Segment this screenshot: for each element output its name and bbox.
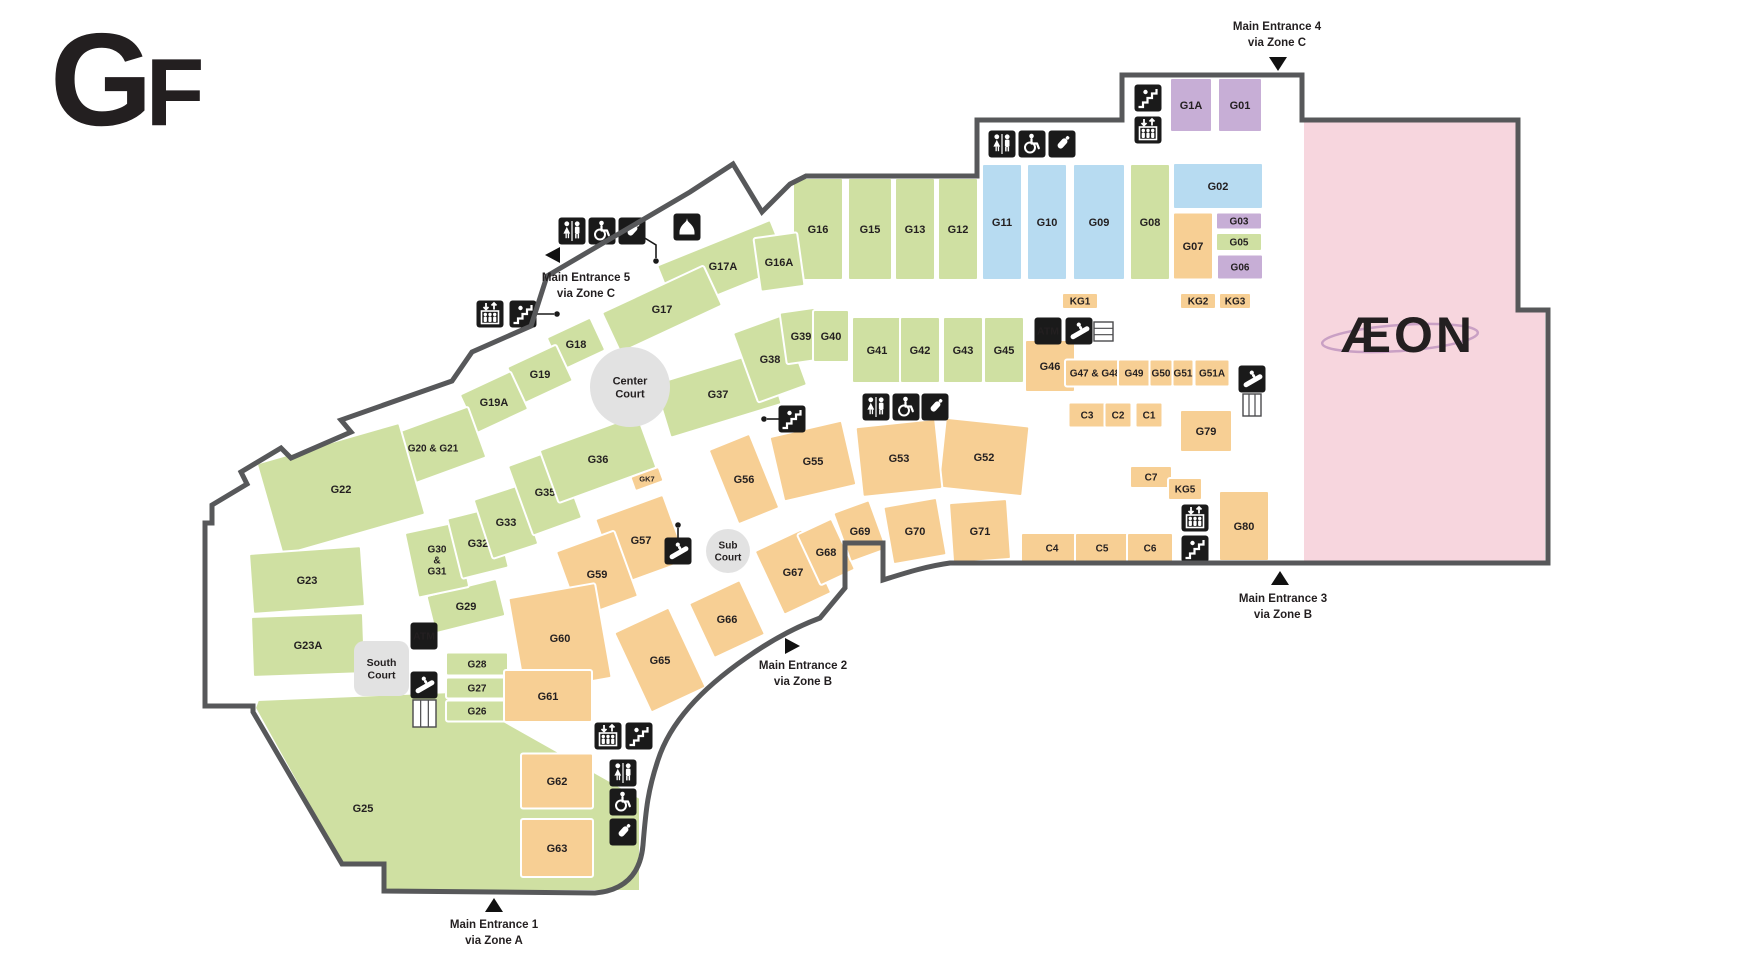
unit-label: G46 [1040, 361, 1061, 373]
unit-g10: G10 [1027, 164, 1067, 280]
unit-g1a: G1A [1170, 78, 1212, 132]
unit-label: G06 [1231, 263, 1250, 274]
entrance-2-label: via Zone B [774, 676, 832, 688]
unit-g51: G51 [1173, 360, 1194, 387]
unit-label: G36 [588, 454, 609, 466]
unit-label: G79 [1196, 426, 1217, 438]
entrance-1-arrow-icon [485, 898, 503, 912]
unit-label: C2 [1112, 411, 1125, 422]
unit-g02: G02 [1173, 163, 1263, 209]
unit-label: G18 [566, 339, 587, 351]
unit-label: G56 [734, 474, 755, 486]
unit-label: G53 [889, 453, 910, 465]
unit-g07: G07 [1173, 213, 1213, 280]
court-label: Sub [719, 541, 738, 552]
unit-label: C3 [1081, 411, 1094, 422]
unit-g55: G55 [770, 421, 857, 502]
sub-court: SubCourt [706, 529, 750, 573]
unit-label: G25 [353, 803, 374, 815]
floor-plan-map: ÆONG16G15G13G12G11G10G09G08G07G02G03G05G… [0, 0, 1746, 958]
unit-label: G51 [1174, 369, 1193, 380]
unit-label: C4 [1046, 544, 1059, 555]
unit-c6: C6 [1127, 533, 1173, 563]
stairs-icon [1135, 85, 1162, 112]
court-label: Court [615, 388, 645, 400]
landing-mark [1243, 394, 1261, 416]
unit-g50: G50 [1150, 360, 1173, 387]
unit-g11: G11 [982, 164, 1022, 280]
unit-g22: G22 [257, 423, 425, 555]
unit-g63: G63 [521, 819, 593, 877]
unit-kg2: KG2 [1180, 293, 1216, 309]
unit-label: G11 [992, 217, 1012, 229]
main-entrance-2: Main Entrance 2via Zone B [759, 638, 847, 688]
unit-kg5: KG5 [1168, 478, 1202, 500]
stairs-icon [779, 406, 806, 433]
unit-label: G65 [650, 655, 671, 667]
unit-label: G27 [468, 684, 487, 695]
unit-g09: G09 [1073, 164, 1125, 280]
unit-label: G45 [994, 345, 1015, 357]
unit-c5: C5 [1075, 533, 1129, 563]
unit-g61: G61 [504, 670, 592, 722]
unit-label: C6 [1144, 544, 1157, 555]
escalator-icon [411, 672, 438, 699]
unit-label: G47 & G48 [1070, 369, 1121, 380]
unit-c3: C3 [1069, 403, 1106, 428]
unit-kg3: KG3 [1219, 293, 1251, 309]
unit-label: G42 [910, 345, 931, 357]
main-entrance-1: Main Entrance 1via Zone A [450, 898, 539, 947]
atm-label: ATM [413, 631, 435, 643]
stairs-icon [626, 723, 653, 750]
court-label: South [367, 657, 397, 669]
unit-label: G09 [1089, 217, 1110, 229]
unit-label: G08 [1140, 217, 1161, 229]
accessible-icon [610, 789, 637, 816]
unit-g28: G28 [446, 653, 508, 676]
unit-label: & [433, 556, 440, 567]
entrance-4-label: via Zone C [1248, 37, 1306, 49]
unit-g15: G15 [848, 178, 892, 280]
unit-c4: C4 [1021, 533, 1083, 563]
unit-label: C5 [1096, 544, 1109, 555]
unit-label: G43 [953, 345, 974, 357]
atm-icon: ATM [411, 623, 438, 650]
unit-label: GK7 [639, 475, 654, 484]
unit-label: G60 [550, 633, 571, 645]
main-entrance-3: Main Entrance 3via Zone B [1239, 571, 1327, 621]
unit-label: G02 [1208, 181, 1229, 193]
center-court: CenterCourt [590, 347, 670, 427]
unit-g49: G49 [1118, 360, 1150, 387]
atm-label: ATM [1037, 326, 1059, 338]
icon-leader-line [761, 416, 779, 422]
unit-g27: G27 [446, 678, 508, 699]
unit-label: G17A [709, 261, 738, 273]
unit-label: G41 [867, 345, 888, 357]
unit-label: G05 [1230, 238, 1249, 249]
unit-label: G49 [1125, 369, 1144, 380]
unit-label: G17 [652, 304, 673, 316]
unit-label: G52 [974, 452, 995, 464]
unit-label: KG3 [1225, 297, 1246, 308]
unit-label: G15 [860, 224, 881, 236]
unit-label: G70 [905, 526, 926, 538]
toilets-icon [863, 394, 890, 421]
unit-c7: C7 [1130, 466, 1172, 488]
unit-label: G26 [468, 707, 487, 718]
unit-g79: G79 [1180, 410, 1232, 452]
court-label: Court [368, 669, 396, 681]
unit-g65: G65 [614, 607, 706, 712]
unit-label: G10 [1037, 217, 1058, 229]
unit-label: G80 [1234, 521, 1255, 533]
unit-g56: G56 [709, 434, 780, 525]
unit-label: G55 [803, 456, 824, 468]
unit-g03: G03 [1216, 213, 1262, 230]
unit-label: G03 [1230, 217, 1249, 228]
aeon-anchor-store: ÆON [1304, 120, 1545, 561]
unit-label: G59 [587, 569, 608, 581]
unit-g42: G42 [900, 317, 940, 383]
unit-label: C7 [1145, 473, 1158, 484]
unit-g41: G41 [852, 317, 902, 383]
unit-label: G32 [468, 538, 489, 550]
unit-g47-g48: G47 & G48 [1065, 360, 1125, 387]
unit-label: G16A [765, 257, 794, 269]
unit-g23a: G23A [251, 613, 365, 677]
entrance-4-arrow-icon [1269, 57, 1287, 71]
unit-label: G22 [331, 484, 352, 496]
unit-g71: G71 [949, 499, 1011, 563]
unit-label: G23 [297, 575, 318, 587]
unit-label: G63 [547, 843, 568, 855]
unit-label: G35 [535, 487, 556, 499]
unit-label: G50 [1152, 369, 1171, 380]
unit-label: G16 [808, 224, 829, 236]
unit-g70: G70 [883, 498, 946, 564]
main-entrance-4: Main Entrance 4via Zone C [1233, 21, 1322, 71]
unit-g13: G13 [895, 178, 935, 280]
unit-label: KG5 [1175, 485, 1196, 496]
accessible-icon [1019, 131, 1046, 158]
prayer-room-icon [674, 214, 701, 241]
unit-label: G30 [428, 545, 447, 556]
unit-label: KG2 [1188, 297, 1209, 308]
entrance-3-arrow-icon [1271, 571, 1289, 585]
unit-label: G62 [547, 776, 568, 788]
court-label: Center [613, 375, 649, 387]
unit-g53: G53 [856, 419, 943, 497]
unit-g12: G12 [938, 178, 978, 280]
unit-label: C1 [1143, 411, 1156, 422]
entrance-3-label: via Zone B [1254, 609, 1312, 621]
unit-g23: G23 [249, 546, 365, 614]
unit-label: G1A [1180, 100, 1203, 112]
unit-label: G19A [480, 397, 509, 409]
unit-c2: C2 [1105, 403, 1132, 428]
unit-g06: G06 [1217, 255, 1263, 280]
unit-g01: G01 [1218, 78, 1262, 132]
nursing-room-icon [1049, 131, 1076, 158]
accessible-icon [893, 394, 920, 421]
unit-g43: G43 [943, 317, 983, 383]
unit-label: G01 [1230, 100, 1251, 112]
unit-label: G20 & G21 [408, 444, 459, 455]
unit-label: G61 [538, 691, 559, 703]
unit-label: G39 [791, 331, 812, 343]
unit-label: G12 [948, 224, 969, 236]
unit-label: G67 [783, 567, 804, 579]
entrance-5-arrow-icon [545, 247, 560, 263]
unit-g26: G26 [446, 701, 508, 722]
unit-c1: C1 [1136, 403, 1163, 428]
elevator-icon [1135, 117, 1162, 144]
escalator-icon [1239, 366, 1266, 393]
entrance-3-label: Main Entrance 3 [1239, 593, 1327, 605]
entrance-5-label: Main Entrance 5 [542, 272, 631, 284]
unit-label: G07 [1183, 241, 1204, 253]
entrance-5-label: via Zone C [557, 288, 615, 300]
toilets-icon [989, 131, 1016, 158]
unit-g80: G80 [1219, 491, 1269, 561]
escalator-icon [665, 538, 692, 565]
unit-g16a: G16A [753, 232, 804, 292]
unit-label: G57 [631, 535, 652, 547]
unit-label: G31 [428, 567, 447, 578]
icon-leader-line [537, 311, 560, 317]
unit-label: G33 [496, 517, 517, 529]
nursing-room-icon [922, 394, 949, 421]
entrance-4-label: Main Entrance 4 [1233, 21, 1322, 33]
unit-label: G37 [708, 389, 729, 401]
landing-mark [413, 700, 436, 727]
unit-label: G29 [456, 601, 477, 613]
unit-g62: G62 [521, 754, 593, 809]
unit-g51a: G51A [1195, 360, 1230, 387]
unit-label: G28 [468, 660, 487, 671]
unit-label: G13 [905, 224, 926, 236]
entrance-2-label: Main Entrance 2 [759, 660, 847, 672]
stairs-icon [1182, 536, 1209, 563]
unit-label: G71 [970, 526, 991, 538]
entrance-1-label: via Zone A [465, 935, 523, 947]
entrance-2-arrow-icon [785, 638, 800, 654]
elevator-icon [1182, 505, 1209, 532]
entrance-1-label: Main Entrance 1 [450, 919, 539, 931]
unit-g08: G08 [1130, 164, 1170, 280]
unit-kg1: KG1 [1062, 293, 1098, 309]
escalator-icon [1066, 318, 1093, 345]
unit-label: KG1 [1070, 297, 1091, 308]
south-court: SouthCourt [354, 641, 409, 696]
elevator-icon [595, 723, 622, 750]
unit-label: G66 [717, 614, 738, 626]
elevator-icon [477, 301, 504, 328]
landing-mark [1094, 322, 1113, 341]
toilets-icon [559, 218, 586, 245]
aeon-logo-text: ÆON [1341, 307, 1475, 363]
unit-g45: G45 [984, 317, 1024, 383]
court-label: Court [715, 553, 742, 564]
unit-g66: G66 [689, 580, 765, 658]
unit-label: G69 [850, 526, 871, 538]
nursing-room-icon [610, 819, 637, 846]
unit-label: G38 [760, 354, 781, 366]
toilets-icon [610, 760, 637, 787]
unit-g52: G52 [939, 418, 1030, 496]
mall-floor-plan: GF ÆONG16G15G13G12G11G10G09G08G07G02G03G… [0, 0, 1746, 958]
unit-label: G23A [294, 640, 323, 652]
unit-label: G40 [821, 331, 842, 343]
unit-label: G19 [530, 369, 551, 381]
unit-label: G51A [1199, 369, 1225, 380]
unit-g40: G40 [813, 310, 849, 362]
unit-g05: G05 [1216, 233, 1262, 251]
atm-icon: ATM [1035, 318, 1062, 345]
unit-label: G68 [816, 547, 837, 559]
